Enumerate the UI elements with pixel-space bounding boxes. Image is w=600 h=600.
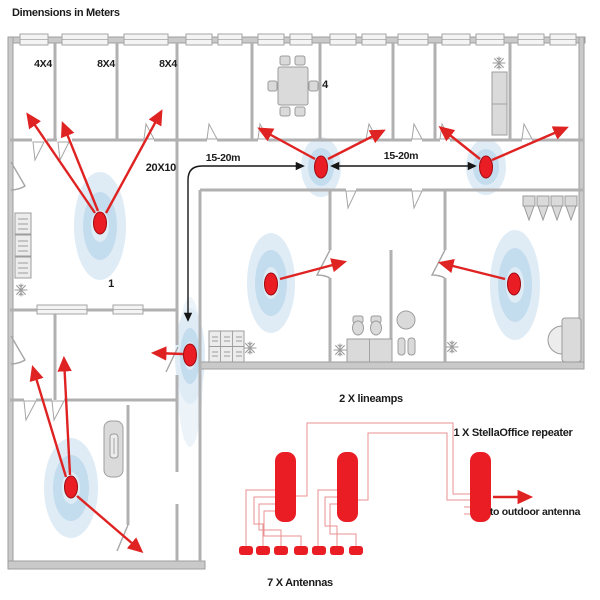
room-label-4: 4 — [322, 79, 329, 91]
wire — [246, 490, 275, 546]
toilets — [347, 316, 392, 362]
round-table — [397, 311, 415, 355]
antenna-unit — [349, 546, 363, 555]
antenna-unit — [274, 546, 288, 555]
wire — [464, 507, 470, 514]
installation-diagram: Dimensions in Meters 4X4 8X4 8X4 4 20X10… — [0, 0, 600, 600]
antenna-dot — [184, 344, 197, 366]
antennas-label: 7 X Antennas — [267, 577, 333, 589]
antenna-dot — [65, 476, 78, 498]
room-label-4x4: 4X4 — [34, 58, 52, 70]
signal-arrow — [28, 115, 95, 213]
antenna-dot — [265, 273, 278, 295]
repeater-label: 1 X StellaOffice repeater — [453, 427, 573, 439]
signal-arrow — [260, 129, 315, 159]
elevator-door — [104, 421, 123, 477]
page-title: Dimensions in Meters — [12, 7, 120, 19]
antenna-dot — [315, 156, 328, 178]
room-label-8x4-a: 8X4 — [97, 58, 115, 70]
fridge — [492, 72, 507, 135]
schematic: 2 X lineamps 1 X StellaOffice repeater t… — [239, 393, 581, 589]
antenna-dot — [480, 156, 493, 178]
room-label-1: 1 — [108, 278, 114, 290]
outdoor-antenna-label: to outdoor antenna — [490, 506, 581, 518]
lineamps-label: 2 X lineamps — [339, 393, 403, 405]
lineamp-unit — [275, 452, 296, 522]
coat-rack — [523, 196, 577, 220]
meeting-table — [268, 56, 318, 116]
signal-arrow — [441, 128, 480, 159]
distance-label: 15-20m — [206, 152, 240, 164]
signal-arrow — [328, 131, 383, 159]
floor-plan: Dimensions in Meters 4X4 8X4 8X4 4 20X10… — [8, 7, 585, 569]
window-row-top — [20, 34, 576, 45]
wire — [318, 490, 337, 546]
signal-arrow — [154, 353, 183, 354]
antenna-unit — [294, 546, 308, 555]
antenna-dot — [94, 212, 107, 234]
antenna-unit — [312, 546, 326, 555]
antenna-dots — [65, 156, 521, 498]
antenna-units — [239, 546, 363, 555]
room-label-20x10: 20X10 — [146, 162, 176, 174]
repeater-unit — [470, 452, 491, 522]
wire — [295, 423, 470, 496]
shelving-unit — [209, 331, 244, 362]
bookshelf-left — [15, 213, 31, 278]
antenna-dot — [508, 273, 521, 295]
antenna-unit — [256, 546, 270, 555]
lineamp-unit — [337, 452, 358, 522]
distance-label: 15-20m — [384, 150, 418, 162]
room-label-8x4-b: 8X4 — [159, 58, 177, 70]
desk — [548, 318, 581, 362]
antenna-unit — [239, 546, 253, 555]
antenna-unit — [330, 546, 344, 555]
